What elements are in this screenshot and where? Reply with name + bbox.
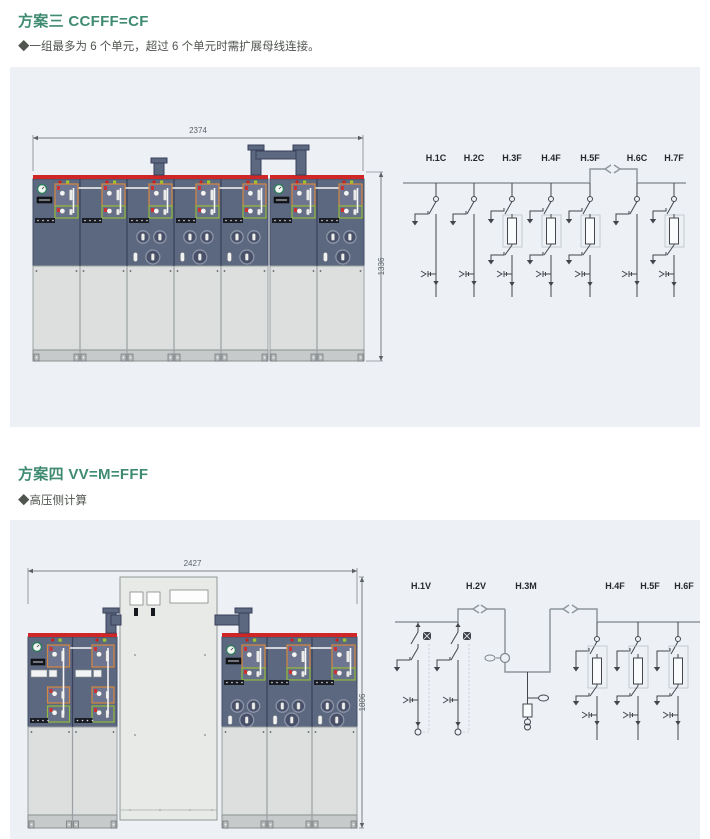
svg-text:1336: 1336 bbox=[377, 257, 386, 275]
svg-text:H.2C: H.2C bbox=[464, 153, 485, 163]
svg-text:H.5F: H.5F bbox=[640, 581, 660, 591]
scheme-4-figure-panel: 24271806H.1VH.2VH.3MH.4FH.5FH.6F bbox=[10, 520, 700, 839]
svg-text:H.2V: H.2V bbox=[466, 581, 486, 591]
svg-text:H.3F: H.3F bbox=[502, 153, 522, 163]
svg-text:H.7F: H.7F bbox=[664, 153, 684, 163]
svg-text:H.3M: H.3M bbox=[515, 581, 537, 591]
scheme-4-title: 方案四 VV=M=FFF bbox=[18, 463, 148, 484]
scheme-3-figure-panel: 23741336H.1CH.2CH.3FH.4FH.5FH.6CH.7F bbox=[10, 67, 700, 427]
scheme-3-drawing-svg: 23741336H.1CH.2CH.3FH.4FH.5FH.6CH.7F bbox=[10, 67, 700, 427]
svg-text:H.1C: H.1C bbox=[426, 153, 447, 163]
scheme-3-note: ◆一组最多为 6 个单元，超过 6 个单元时需扩展母线连接。 bbox=[18, 38, 320, 54]
svg-text:H.4F: H.4F bbox=[605, 581, 625, 591]
svg-text:H.6C: H.6C bbox=[627, 153, 648, 163]
catalog-page: 方案三 CCFFF=CF ◆一组最多为 6 个单元，超过 6 个单元时需扩展母线… bbox=[0, 0, 710, 839]
svg-text:H.1V: H.1V bbox=[411, 581, 431, 591]
svg-text:2374: 2374 bbox=[189, 126, 207, 135]
svg-text:H.5F: H.5F bbox=[580, 153, 600, 163]
scheme-3-title: 方案三 CCFFF=CF bbox=[18, 10, 149, 31]
svg-text:1806: 1806 bbox=[358, 693, 367, 711]
scheme-4-drawing-svg: 24271806H.1VH.2VH.3MH.4FH.5FH.6F bbox=[10, 520, 700, 839]
svg-text:2427: 2427 bbox=[184, 559, 202, 568]
scheme-4-note: ◆高压侧计算 bbox=[18, 492, 87, 508]
svg-text:H.6F: H.6F bbox=[674, 581, 694, 591]
svg-text:H.4F: H.4F bbox=[541, 153, 561, 163]
